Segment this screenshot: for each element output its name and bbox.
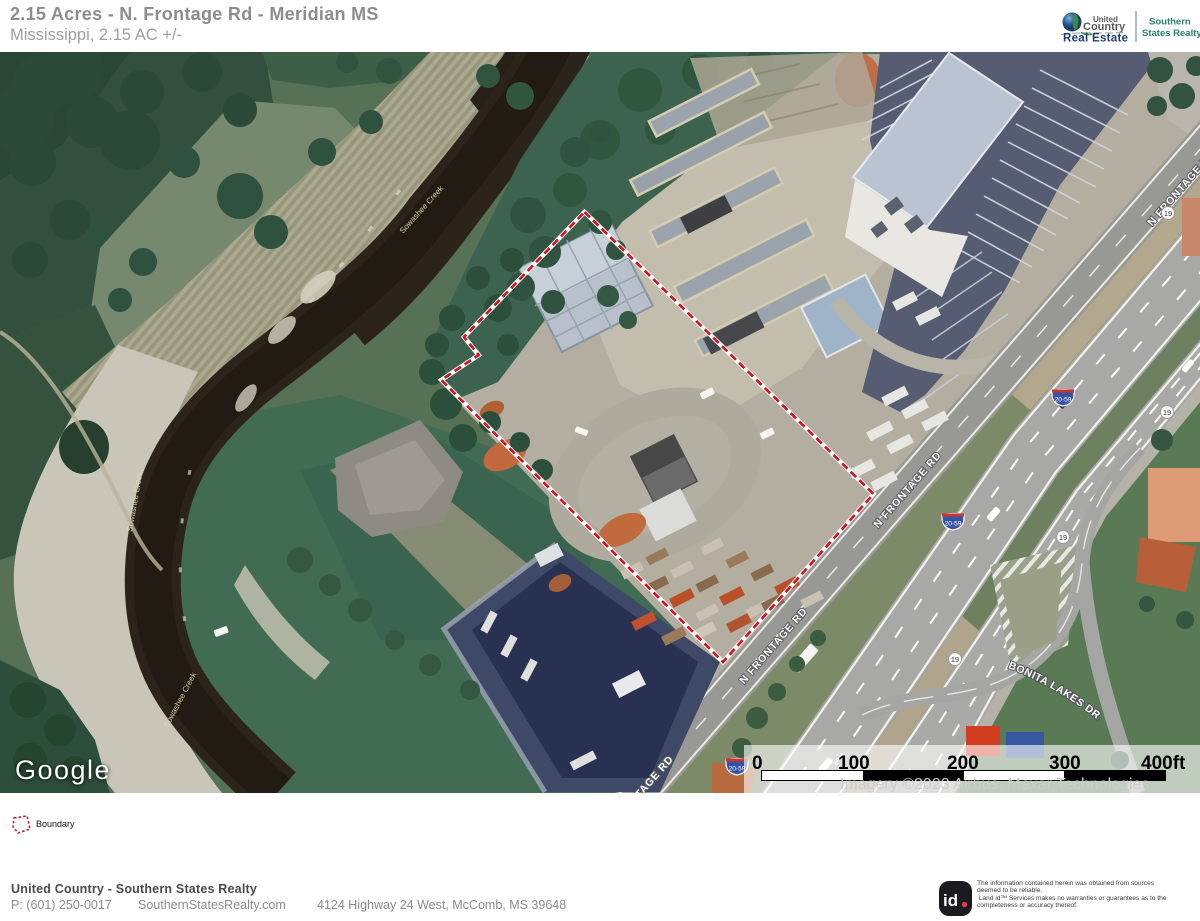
svg-text:19: 19 — [1164, 209, 1172, 218]
svg-text:19: 19 — [1059, 533, 1067, 542]
svg-text:id: id — [943, 891, 958, 910]
svg-text:20-59: 20-59 — [945, 521, 962, 528]
svg-text:19: 19 — [951, 655, 959, 664]
svg-text:20-59: 20-59 — [1055, 397, 1072, 404]
svg-text:Real Estate: Real Estate — [1063, 33, 1128, 45]
svg-text:States Realty: States Realty — [1142, 28, 1200, 39]
svg-text:19: 19 — [1163, 408, 1171, 417]
svg-text:Country: Country — [1083, 21, 1126, 33]
svg-text:Southern: Southern — [1149, 17, 1191, 28]
